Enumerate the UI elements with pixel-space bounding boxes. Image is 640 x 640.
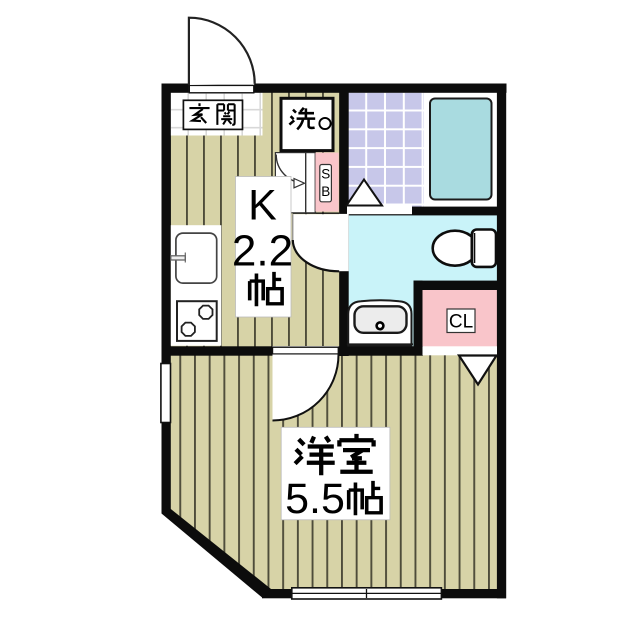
svg-text:B: B bbox=[321, 184, 330, 199]
svg-text:2.2: 2.2 bbox=[232, 227, 293, 276]
svg-text:K: K bbox=[248, 182, 277, 230]
svg-text:S: S bbox=[321, 167, 330, 182]
svg-text:CL: CL bbox=[449, 312, 473, 333]
svg-text:5.5: 5.5 bbox=[285, 475, 345, 523]
